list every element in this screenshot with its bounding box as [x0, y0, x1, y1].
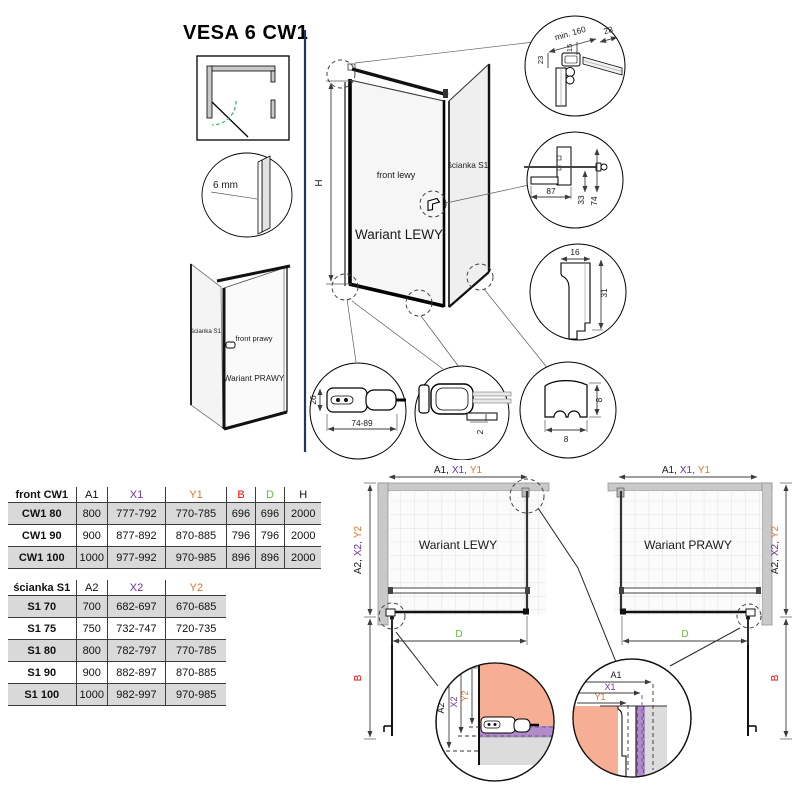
glass-thickness-detail: 6 mm — [202, 153, 292, 237]
small-variant-label: Wariant PRAWY — [224, 373, 285, 383]
variant-prawy-drawing: ścianka S1 front prawy Wariant PRAWY — [191, 264, 290, 429]
dim-y1-label: Y1 — [698, 465, 711, 476]
dim-y1-label: Y1 — [470, 465, 483, 476]
dim-2: 2 — [475, 429, 485, 434]
schematics-drawing: A1,X1,Y1 Wariant LEWY A2,X2,Y2 B — [0, 460, 800, 800]
dim-x2-label: X2, — [770, 541, 781, 556]
detail-front-dims: A1 X1 Y1 — [570, 659, 691, 780]
detail-bottom-hinge: 2 — [415, 366, 511, 460]
detail-wall-profile: 16 31 — [530, 244, 626, 340]
glass-thickness-label: 6 mm — [213, 180, 238, 191]
dim-a1-label: A1, — [662, 465, 677, 476]
schematic-lewy-label: Wariant LEWY — [419, 538, 497, 552]
dim-74-89: 74-89 — [351, 418, 373, 428]
dim-x1-label: X1, — [452, 465, 467, 476]
dim-8v: 8 — [594, 397, 604, 402]
dim-d-label: D — [455, 629, 462, 640]
dim-87: 87 — [546, 186, 556, 196]
dim-b-label: B — [353, 674, 364, 681]
dim-16: 16 — [570, 247, 580, 257]
dim-x2-label: X2 — [449, 696, 459, 707]
side-panel-label: ścianka S1 — [448, 160, 489, 170]
svg-text:A2,X2,Y2: A2,X2,Y2 — [353, 525, 364, 574]
dim-31: 31 — [599, 288, 609, 298]
variant-label: Wariant LEWY — [355, 227, 443, 242]
dim-y1-label: Y1 — [594, 692, 605, 702]
detail-wall-bracket: 87 33 74 — [524, 132, 623, 228]
dim-x1-label: X1, — [680, 465, 695, 476]
dim-a2-label: A2, — [353, 559, 364, 574]
small-front-label: front prawy — [235, 334, 272, 343]
small-wall-label: ścianka S1 — [191, 328, 222, 335]
detail-top-mount: min. 160 28 15 23 — [525, 16, 625, 116]
svg-text:A2,X2,Y2: A2,X2,Y2 — [770, 525, 781, 574]
dim-a1-label: A1, — [434, 465, 449, 476]
dim-x2-label: X2, — [353, 541, 364, 556]
dim-8h: 8 — [564, 434, 569, 444]
dim-d-label: D — [681, 629, 688, 640]
front-panel-label: front lewy — [377, 170, 416, 180]
dim-74: 74 — [589, 196, 599, 206]
detail-handle: 26 74-89 — [308, 363, 406, 459]
top-drawing: 6 mm ścianka S1 front prawy Wariant PRAW… — [0, 0, 800, 460]
dim-26: 26 — [308, 395, 318, 405]
dim-y2-label: Y2 — [460, 690, 470, 701]
main-drawing: front lewy ścianka S1 Wariant LEWY H — [314, 42, 549, 370]
schematic-prawy-label: Wariant PRAWY — [644, 538, 732, 552]
svg-text:A1,X1,Y1: A1,X1,Y1 — [434, 465, 483, 476]
svg-text:A1,X1,Y1: A1,X1,Y1 — [662, 465, 711, 476]
dim-y2-label: Y2 — [353, 525, 364, 538]
dim-b-label: B — [770, 674, 781, 681]
dim-y2-label: Y2 — [770, 525, 781, 538]
dim-a2-label: A2, — [770, 559, 781, 574]
plan-view-icon — [197, 56, 289, 140]
dim-23: 23 — [536, 56, 545, 64]
height-dim-label: H — [314, 179, 325, 186]
spec-sheet: { "title": "VESA 6 CW1", "glass": { "thi… — [0, 0, 800, 800]
dim-33: 33 — [576, 195, 586, 205]
detail-wall-clamp: 8 8 — [520, 362, 616, 458]
detail-wall-dims: A2 X2 Y2 — [436, 663, 559, 781]
dim-a1-label: A1 — [610, 670, 621, 680]
dim-15: 15 — [565, 44, 574, 52]
dim-x1-label: X1 — [604, 682, 615, 692]
